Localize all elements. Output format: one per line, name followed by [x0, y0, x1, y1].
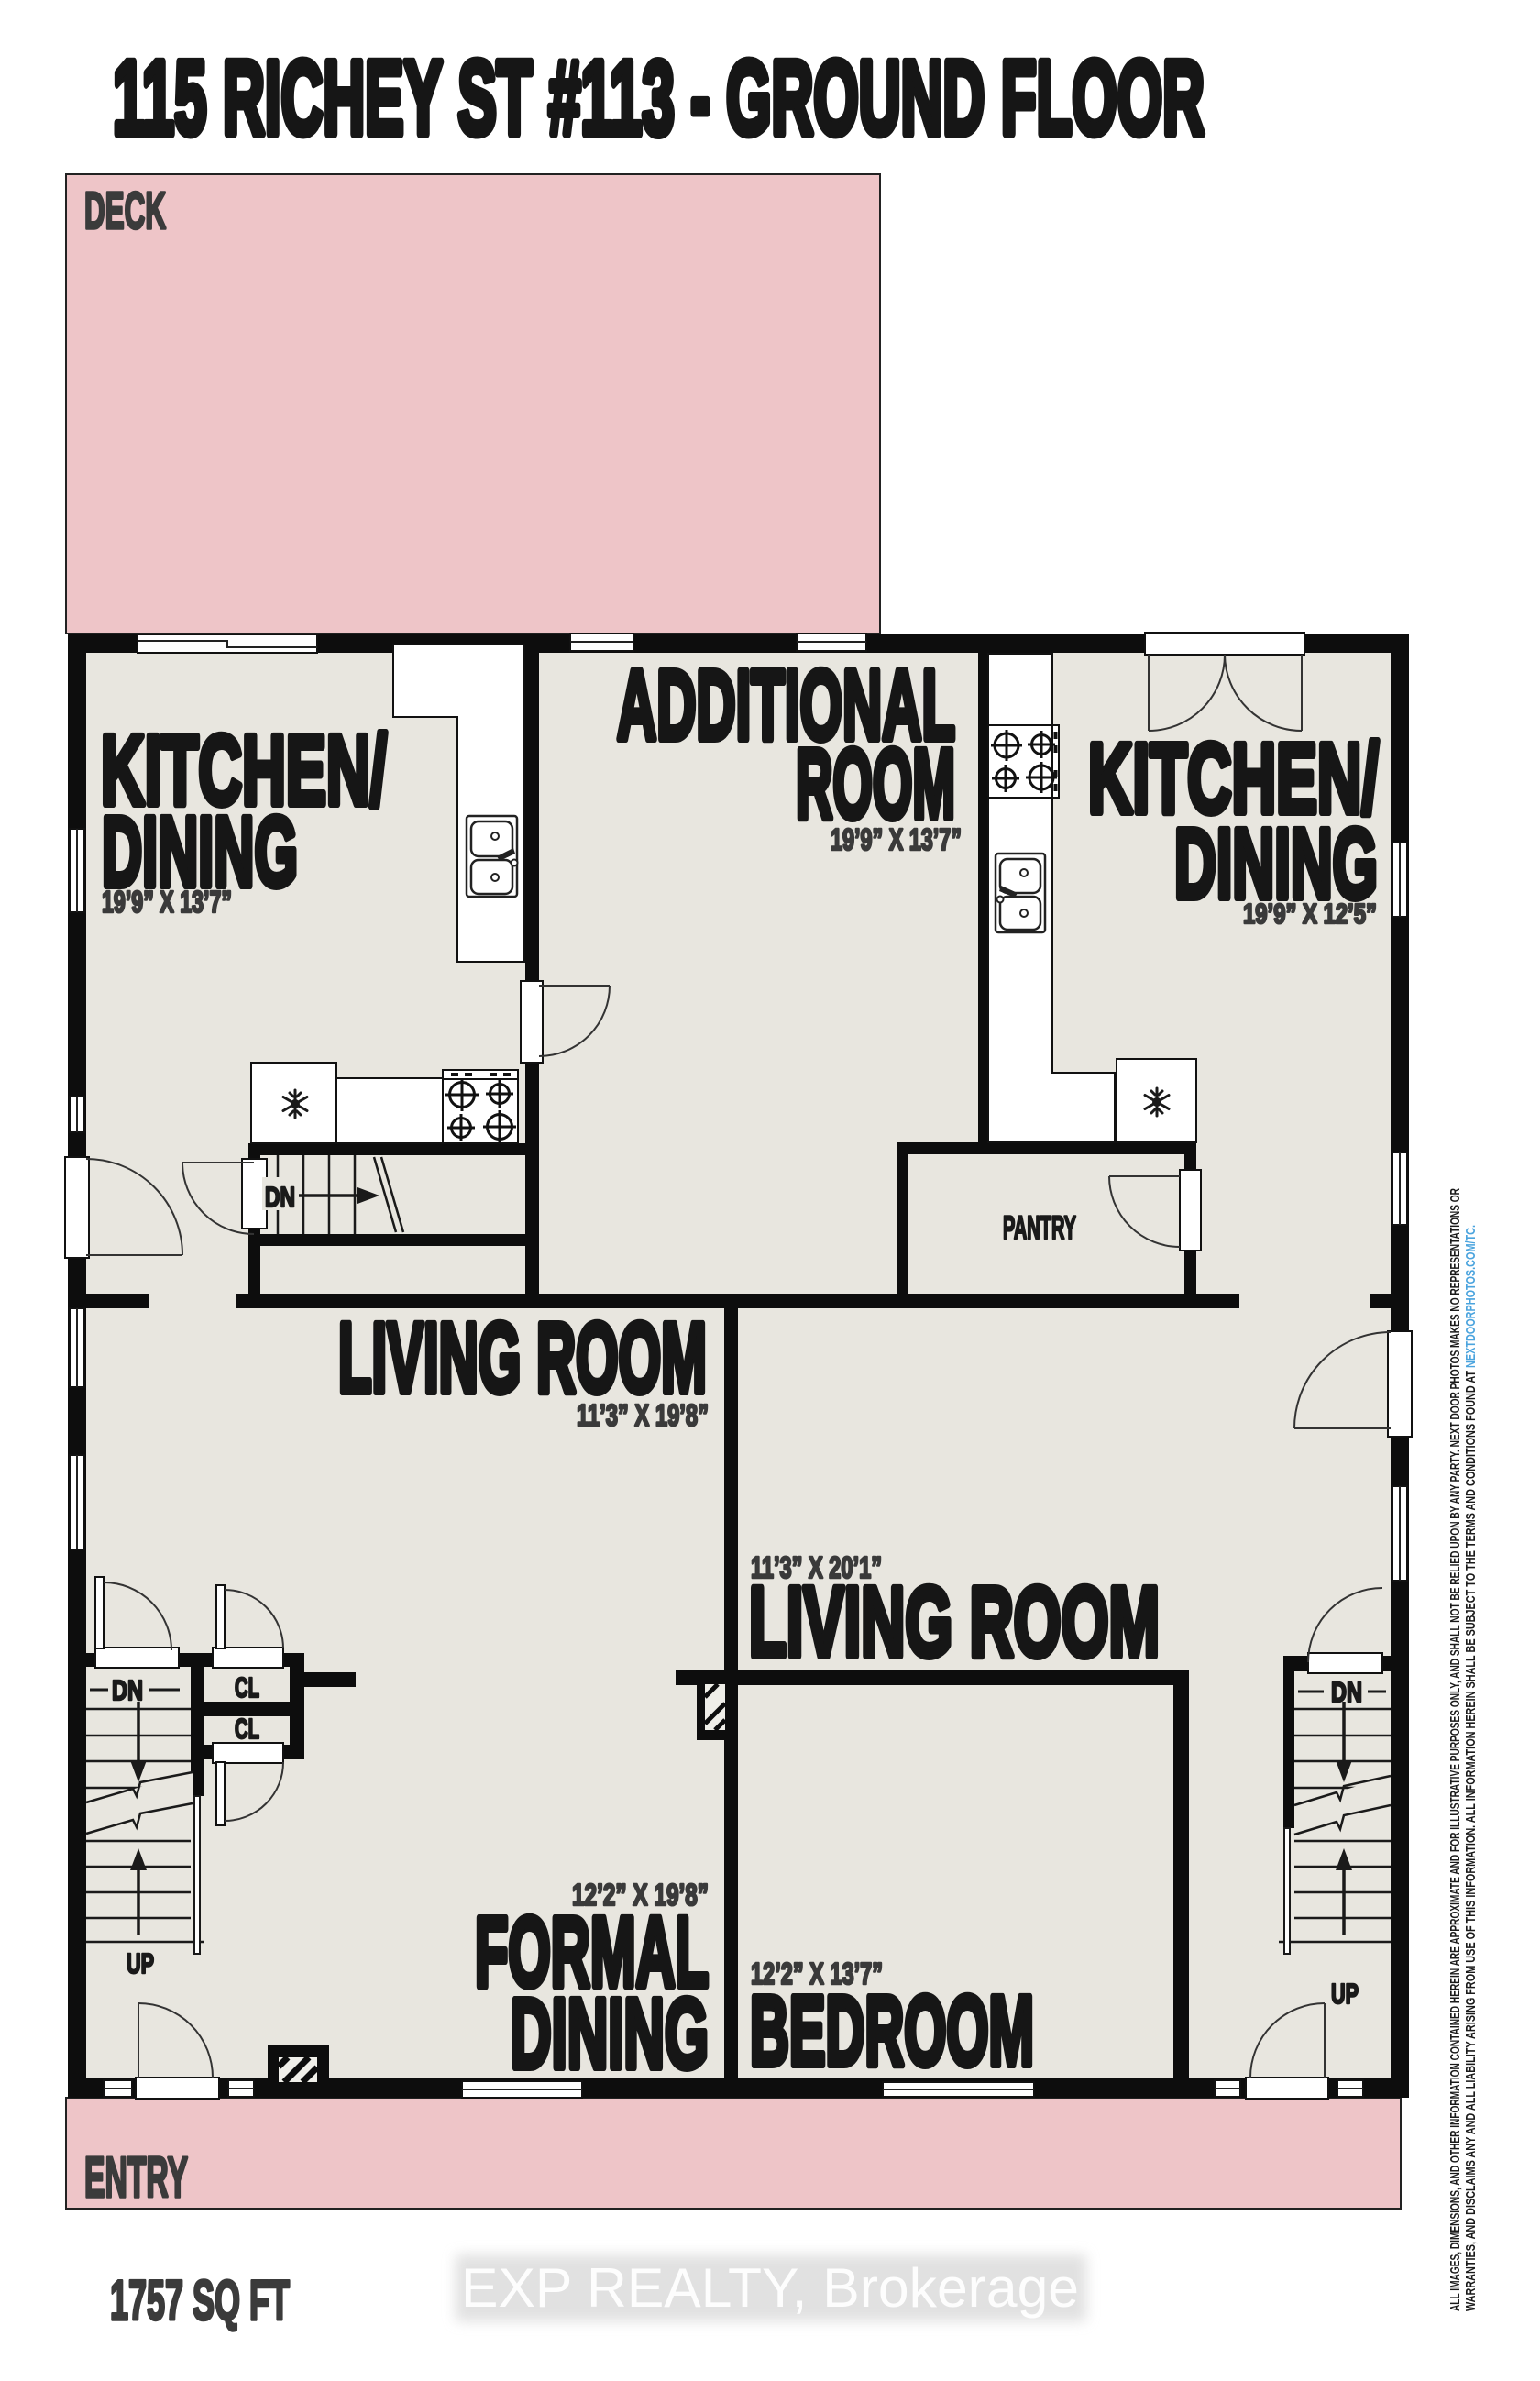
svg-text:DINING: DINING [511, 1978, 709, 2089]
svg-text:UP: UP [126, 1947, 154, 1979]
svg-text:DN: DN [265, 1181, 295, 1213]
svg-text:ALL IMAGES, DIMENSIONS, AND OT: ALL IMAGES, DIMENSIONS, AND OTHER INFORM… [1447, 1188, 1463, 2311]
svg-text:19’9” X 13’7”: 19’9” X 13’7” [830, 822, 962, 856]
svg-text:LIVING ROOM: LIVING ROOM [749, 1566, 1160, 1677]
svg-text:19’9” X 12’5”: 19’9” X 12’5” [1243, 898, 1377, 930]
svg-text:11’3” X 19’8”: 11’3” X 19’8” [577, 1398, 709, 1432]
svg-text:ENTRY: ENTRY [84, 2146, 188, 2210]
svg-text:DN: DN [112, 1674, 143, 1706]
svg-text:BEDROOM: BEDROOM [750, 1975, 1034, 2086]
svg-text:UP: UP [1331, 1978, 1358, 2010]
svg-text:19’9” X 13’7”: 19’9” X 13’7” [102, 885, 232, 919]
svg-text:DN: DN [1331, 1676, 1362, 1708]
svg-text:LIVING ROOM: LIVING ROOM [338, 1302, 707, 1413]
svg-text:1757 SQ FT: 1757 SQ FT [110, 2269, 290, 2331]
svg-text:WARRANTIES, AND DISCLAIMS ANY: WARRANTIES, AND DISCLAIMS ANY AND ALL LI… [1463, 1225, 1479, 2311]
svg-text:CL: CL [235, 1671, 259, 1703]
svg-text:PANTRY: PANTRY [1003, 1210, 1076, 1246]
svg-text:DECK: DECK [84, 182, 166, 240]
svg-text:CL: CL [235, 1713, 259, 1745]
svg-text:EXP REALTY, Brokerage: EXP REALTY, Brokerage [461, 2257, 1079, 2319]
svg-text:115 RICHEY ST #113 - GROUND FL: 115 RICHEY ST #113 - GROUND FLOOR [113, 40, 1204, 157]
